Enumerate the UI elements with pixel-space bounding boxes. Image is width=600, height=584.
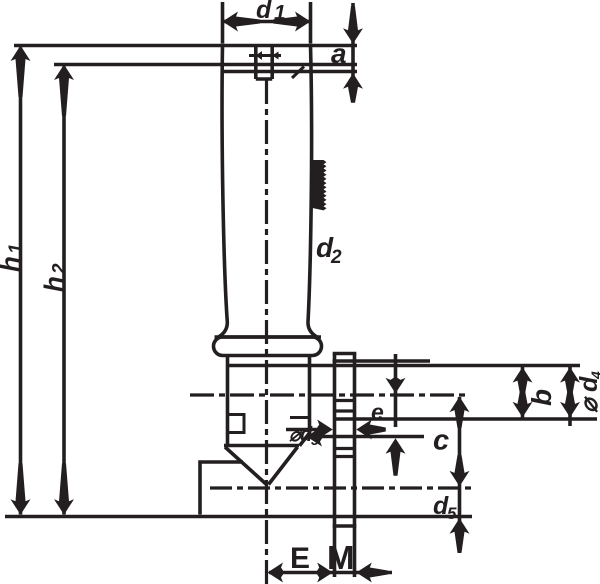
svg-text:2: 2 — [50, 263, 71, 275]
svg-text:M: M — [327, 539, 355, 576]
svg-text:1: 1 — [6, 243, 27, 254]
svg-text:4: 4 — [588, 371, 600, 380]
svg-text:5: 5 — [447, 504, 457, 523]
svg-text:⌀: ⌀ — [576, 396, 600, 413]
svg-text:1: 1 — [274, 2, 286, 25]
svg-text:h: h — [0, 256, 25, 272]
svg-text:e: e — [371, 399, 384, 425]
svg-text:d: d — [256, 0, 272, 24]
svg-text:h: h — [39, 276, 69, 292]
svg-text:c: c — [433, 425, 449, 457]
svg-text:a: a — [331, 38, 347, 69]
svg-text:b: b — [526, 389, 557, 406]
svg-text:E: E — [290, 542, 310, 575]
svg-text:2: 2 — [330, 247, 342, 268]
